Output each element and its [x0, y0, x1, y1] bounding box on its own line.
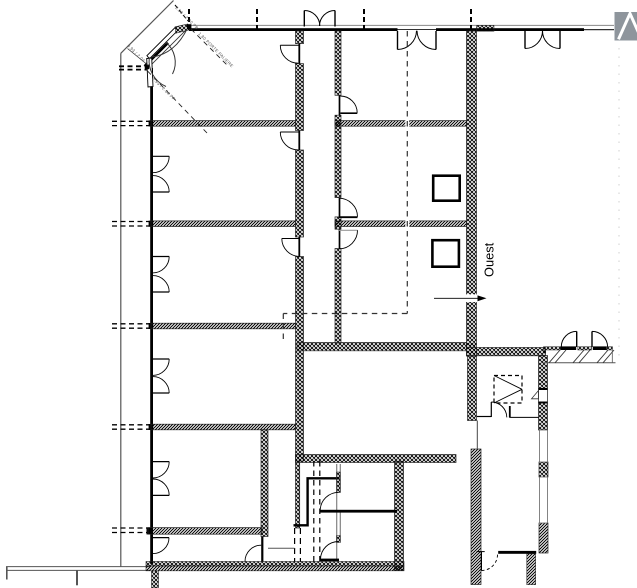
svg-text:Ouest: Ouest — [482, 242, 497, 277]
